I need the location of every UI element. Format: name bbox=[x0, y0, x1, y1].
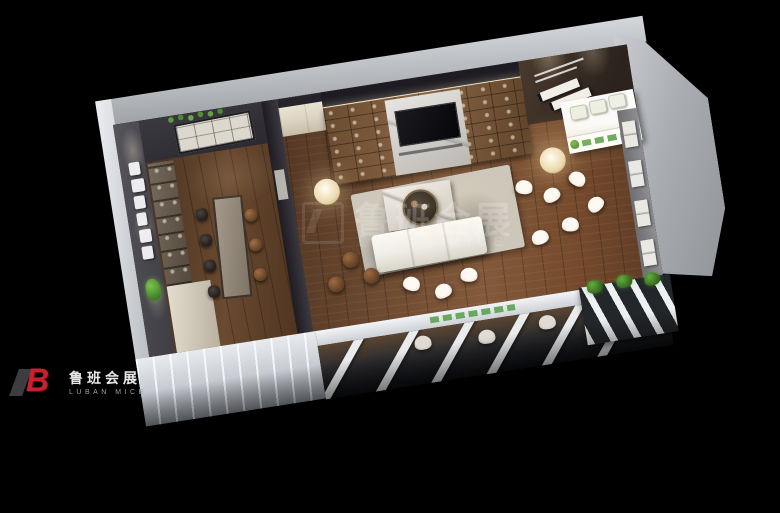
counter-tray bbox=[608, 93, 627, 110]
product-card bbox=[634, 199, 651, 227]
monogram-b-letter: B bbox=[26, 363, 49, 397]
green-brand-emblem bbox=[144, 278, 162, 302]
counter-tray bbox=[588, 98, 607, 115]
lb-monogram-icon: B bbox=[14, 366, 60, 400]
product-card bbox=[622, 120, 639, 148]
calligraphy-stroke bbox=[128, 161, 141, 176]
calligraphy-stroke bbox=[136, 212, 148, 226]
planter-greenery bbox=[643, 271, 661, 286]
brand-name-en: LUBAN MICE bbox=[69, 389, 147, 396]
calligraphy-stroke bbox=[131, 178, 146, 193]
calligraphy-stroke bbox=[133, 195, 146, 210]
scene-background: { "watermark": { "cn": "鲁班会展", "en": "LU… bbox=[0, 0, 780, 438]
watermark-logo-icon bbox=[302, 202, 344, 244]
calligraphy-stroke bbox=[141, 245, 154, 260]
calligraphy-stroke bbox=[139, 228, 153, 243]
brand-name-cn: 鲁班会展 bbox=[69, 371, 147, 386]
armchair bbox=[562, 217, 579, 231]
tv-screen bbox=[394, 102, 461, 147]
brand-text-block: 鲁班会展 LUBAN MICE bbox=[69, 371, 147, 396]
marble-panel bbox=[385, 89, 472, 176]
counter-tray bbox=[569, 104, 588, 121]
leaf-logo-icon bbox=[569, 139, 580, 150]
product-card bbox=[628, 160, 645, 188]
watermark-en-text: LUBAN MICE bbox=[358, 234, 510, 249]
product-card bbox=[640, 239, 657, 267]
brand-logo-lockup: B 鲁班会展 LUBAN MICE bbox=[14, 366, 147, 400]
armchair bbox=[460, 268, 477, 282]
counter-logo-marks bbox=[582, 133, 622, 146]
